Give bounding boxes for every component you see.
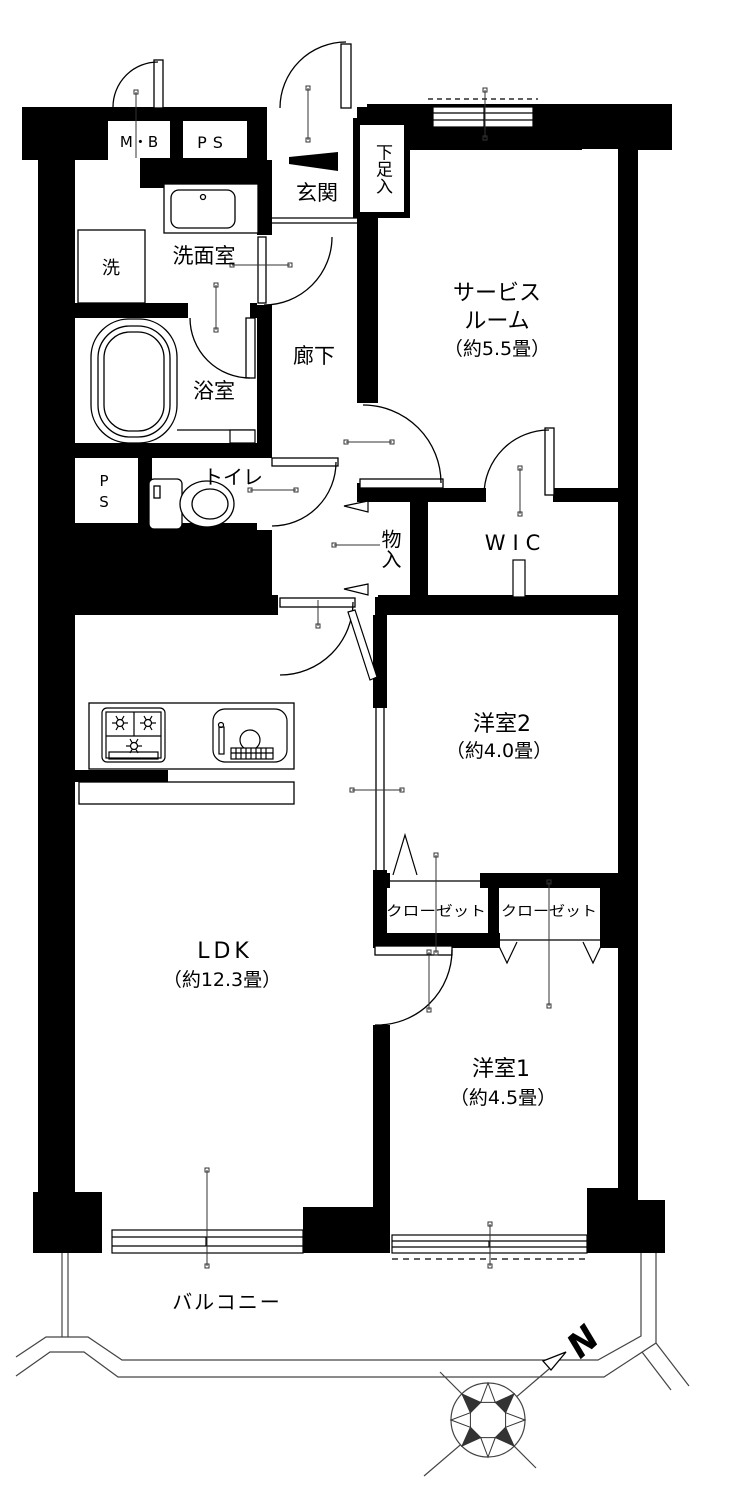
ldk-bedroom2-sliding-door	[376, 708, 384, 870]
label-washer: 洗	[102, 258, 120, 279]
label-closet-left: クローゼット	[386, 904, 486, 920]
label-pipe-space-left: PS	[95, 472, 113, 514]
wic-partition-stub	[513, 560, 525, 597]
label-bedroom2-size: （約4.0畳）	[446, 740, 552, 762]
label-meter-box: M・B	[120, 133, 158, 151]
label-washroom: 洗面室	[173, 244, 236, 268]
floor-plan-drawing: N M・B PS 玄関 下足入 洗 洗面室 浴室 廊下 サービス ルーム （約5…	[0, 0, 738, 1500]
bedroom2-door	[348, 610, 377, 680]
floor-plan-page: N M・B PS 玄関 下足入 洗 洗面室 浴室 廊下 サービス ルーム （約5…	[0, 0, 738, 1500]
label-service-room-1: サービス	[453, 281, 541, 306]
label-balcony: バルコニー	[172, 1290, 282, 1314]
label-toilet: トイレ	[203, 465, 263, 489]
bathtub	[91, 319, 177, 443]
vanity-sink	[164, 184, 258, 233]
label-bedroom1-size: （約4.5畳）	[450, 1087, 556, 1109]
label-service-room-2: ルーム	[464, 309, 529, 334]
label-ldk: LDK	[197, 939, 253, 964]
label-storage: 物入	[378, 529, 402, 569]
label-bathroom: 浴室	[193, 379, 235, 403]
entrance-door	[280, 42, 351, 108]
meter-box-door	[113, 60, 163, 108]
label-wic: WIC	[485, 531, 548, 555]
label-pipe-space-top: PS	[197, 133, 229, 152]
balcony-outline	[16, 1253, 689, 1390]
compass: N	[424, 1318, 607, 1476]
bathroom-step	[177, 430, 255, 443]
label-hallway: 廊下	[293, 344, 335, 368]
label-service-room-size: （約5.5畳）	[444, 338, 550, 360]
compass-arrow-icon	[543, 1352, 566, 1370]
label-entrance: 玄関	[296, 181, 338, 205]
label-bedroom1: 洋室1	[472, 1057, 530, 1082]
wic-door	[484, 428, 554, 495]
label-ldk-size: （約12.3畳）	[163, 969, 281, 991]
label-bedroom2: 洋室2	[473, 712, 531, 737]
toilet-door	[272, 458, 338, 526]
bathroom-door	[190, 318, 255, 378]
bedroom1-door	[375, 946, 452, 1025]
bedroom1-window	[392, 1235, 590, 1259]
label-closet-right: クローゼット	[501, 904, 597, 920]
label-shoe-cabinet: 下足入	[372, 144, 393, 195]
